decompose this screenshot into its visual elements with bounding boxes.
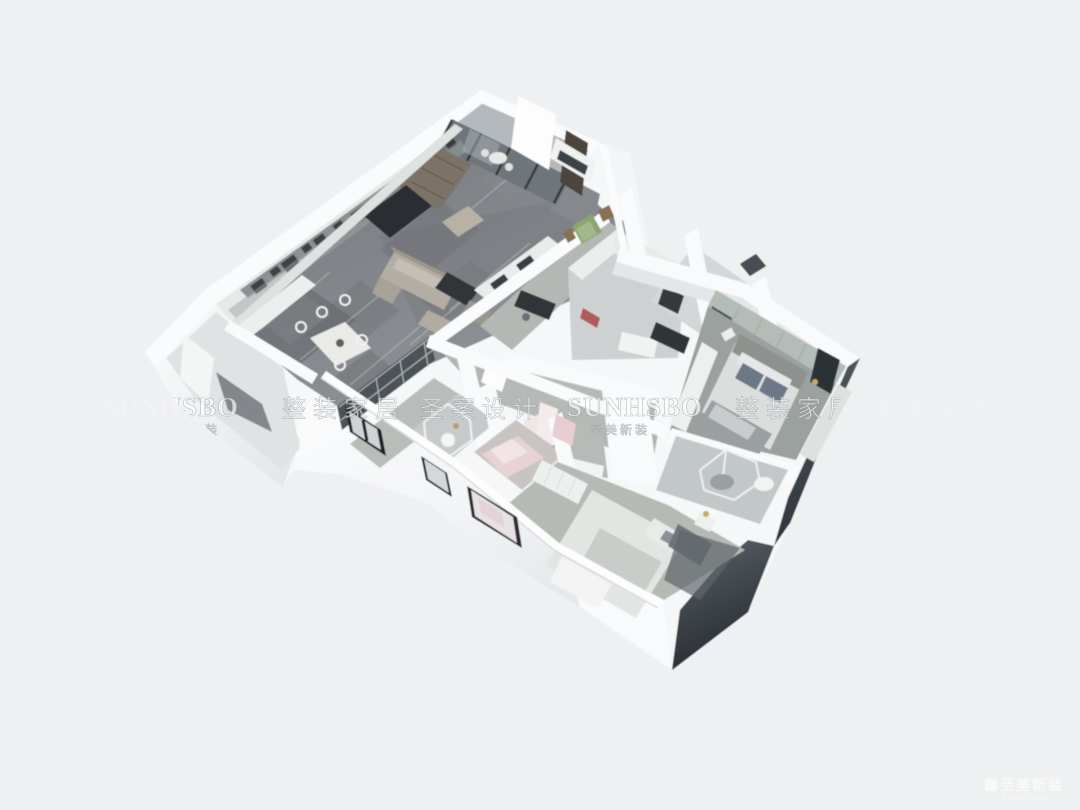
svg-text:SUNHSBO: SUNHSBO <box>1002 793 1049 802</box>
svg-text:圣美新装: 圣美新装 <box>999 777 1064 793</box>
svg-text:圣案设计: 圣案设计 <box>873 396 997 423</box>
svg-text:圣案设计: 圣案设计 <box>420 396 544 423</box>
svg-text:圣美新装: 圣美新装 <box>590 422 650 437</box>
svg-text:整装家居: 整装家居 <box>282 396 406 423</box>
svg-text:SUNHSBO: SUNHSBO <box>567 392 703 422</box>
